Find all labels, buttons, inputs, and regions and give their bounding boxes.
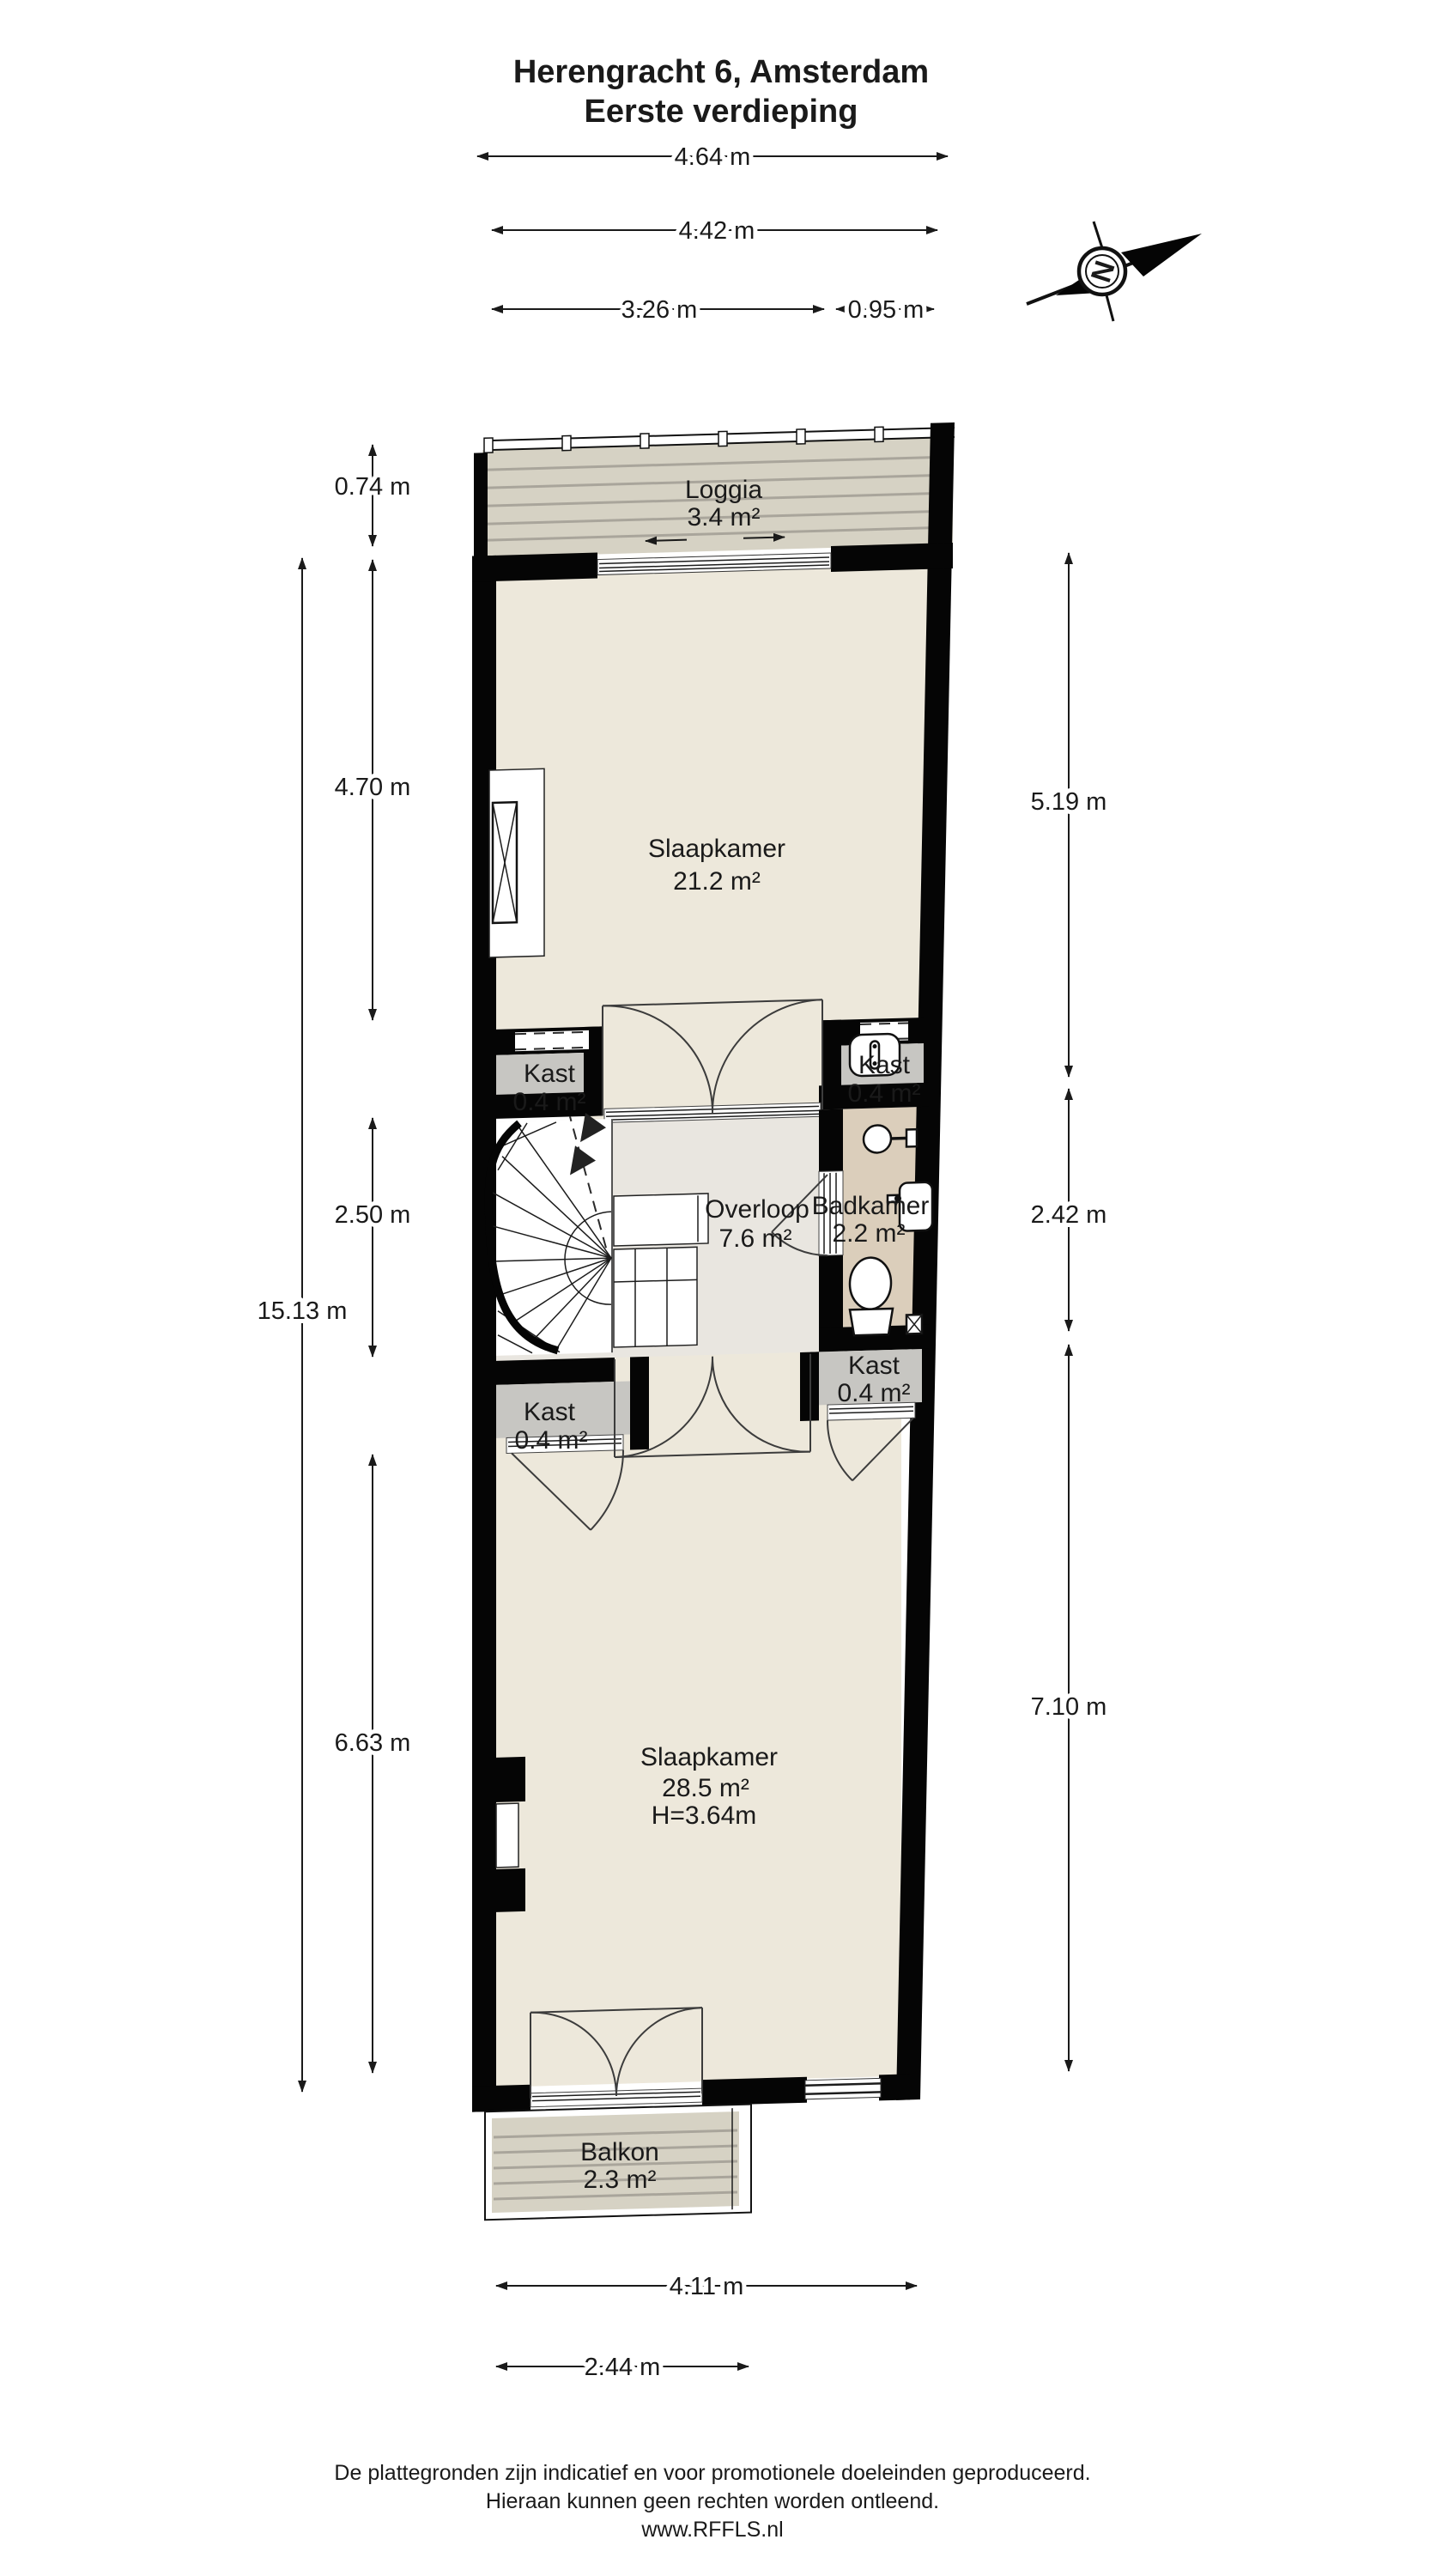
- top-wall-right: [831, 543, 953, 572]
- closet-bottom-left-label: Kast: [524, 1398, 576, 1426]
- bathroom-area: 2.2 m²: [832, 1219, 905, 1248]
- closet-bottom-left-area: 0.4 m²: [514, 1426, 587, 1455]
- vent-icon: [906, 1315, 922, 1334]
- bedroom2-floor: [496, 1350, 901, 2087]
- closet-bottom-right-area: 0.4 m²: [837, 1379, 910, 1407]
- dim-height-total: 15.13 m: [258, 1297, 348, 1325]
- footer-line2: Hieraan kunnen geen rechten worden ontle…: [486, 2489, 939, 2513]
- dim-right-top: 5.19 m: [1031, 788, 1107, 816]
- balcony-area: 2.3 m²: [583, 2166, 656, 2194]
- dim-width-right-part: 0.95 m: [848, 296, 925, 324]
- bedroom2-label: Slaapkamer: [640, 1743, 778, 1771]
- footer-website: www.RFFLS.nl: [640, 2518, 783, 2542]
- dim-balcony-width: 2.44 m: [585, 2354, 661, 2381]
- landing-label: Overloop: [705, 1195, 809, 1224]
- dim-width-outer: 4.64 m: [675, 143, 751, 171]
- dim-width-inner: 4.42 m: [679, 217, 755, 245]
- page-subtitle: Eerste verdieping: [585, 94, 858, 130]
- dim-bottom-width: 4.11 m: [670, 2273, 744, 2300]
- footer-line1: De plattegronden zijn indicatief en voor…: [334, 2461, 1090, 2485]
- floorplan-drawing: [472, 422, 955, 2221]
- loggia-left-wall: [474, 453, 488, 557]
- dim-loggia-depth: 0.74 m: [335, 473, 411, 501]
- dim-right-middle: 2.42 m: [1031, 1201, 1107, 1229]
- bedroom1-label: Slaapkamer: [648, 835, 785, 863]
- floorplan-page: Herengracht 6, Amsterdam Eerste verdiepi…: [0, 0, 1449, 2576]
- bedroom1-area: 21.2 m²: [673, 867, 761, 896]
- closet-top-left-area: 0.4 m²: [512, 1088, 585, 1116]
- footer-disclaimer: De plattegronden zijn indicatief en voor…: [334, 2461, 1090, 2542]
- loggia-label: Loggia: [685, 476, 762, 504]
- closet-bottom-right-label: Kast: [848, 1352, 900, 1380]
- balcony-label: Balkon: [580, 2138, 659, 2166]
- dim-right-bottom: 7.10 m: [1031, 1693, 1107, 1721]
- bedroom2-window: [805, 2078, 881, 2099]
- closet-top-left-label: Kast: [524, 1060, 576, 1088]
- toilet-icon: [850, 1257, 893, 1335]
- floorplan-svg: Herengracht 6, Amsterdam Eerste verdiepi…: [0, 0, 1449, 2576]
- dim-landing-depth: 2.50 m: [335, 1201, 411, 1229]
- top-wall-left: [472, 553, 597, 582]
- dim-width-left-part: 3.26 m: [621, 296, 698, 324]
- closet-top-right-label: Kast: [858, 1051, 911, 1079]
- landing-area: 7.6 m²: [718, 1224, 791, 1253]
- closet-top-right-area: 0.4 m²: [847, 1079, 920, 1108]
- bathroom-label: Badkamer: [812, 1192, 930, 1220]
- bedroom2-height: H=3.64m: [652, 1801, 757, 1830]
- bedroom1-chimney-niche: [489, 769, 544, 957]
- bedroom2-area: 28.5 m²: [662, 1774, 749, 1802]
- loggia-area: 3.4 m²: [687, 503, 760, 532]
- dim-bedroom2-depth: 6.63 m: [335, 1729, 411, 1757]
- page-title: Herengracht 6, Amsterdam: [513, 54, 929, 90]
- compass-north-icon: N: [1027, 222, 1202, 321]
- dim-bedroom1-depth: 4.70 m: [335, 774, 411, 801]
